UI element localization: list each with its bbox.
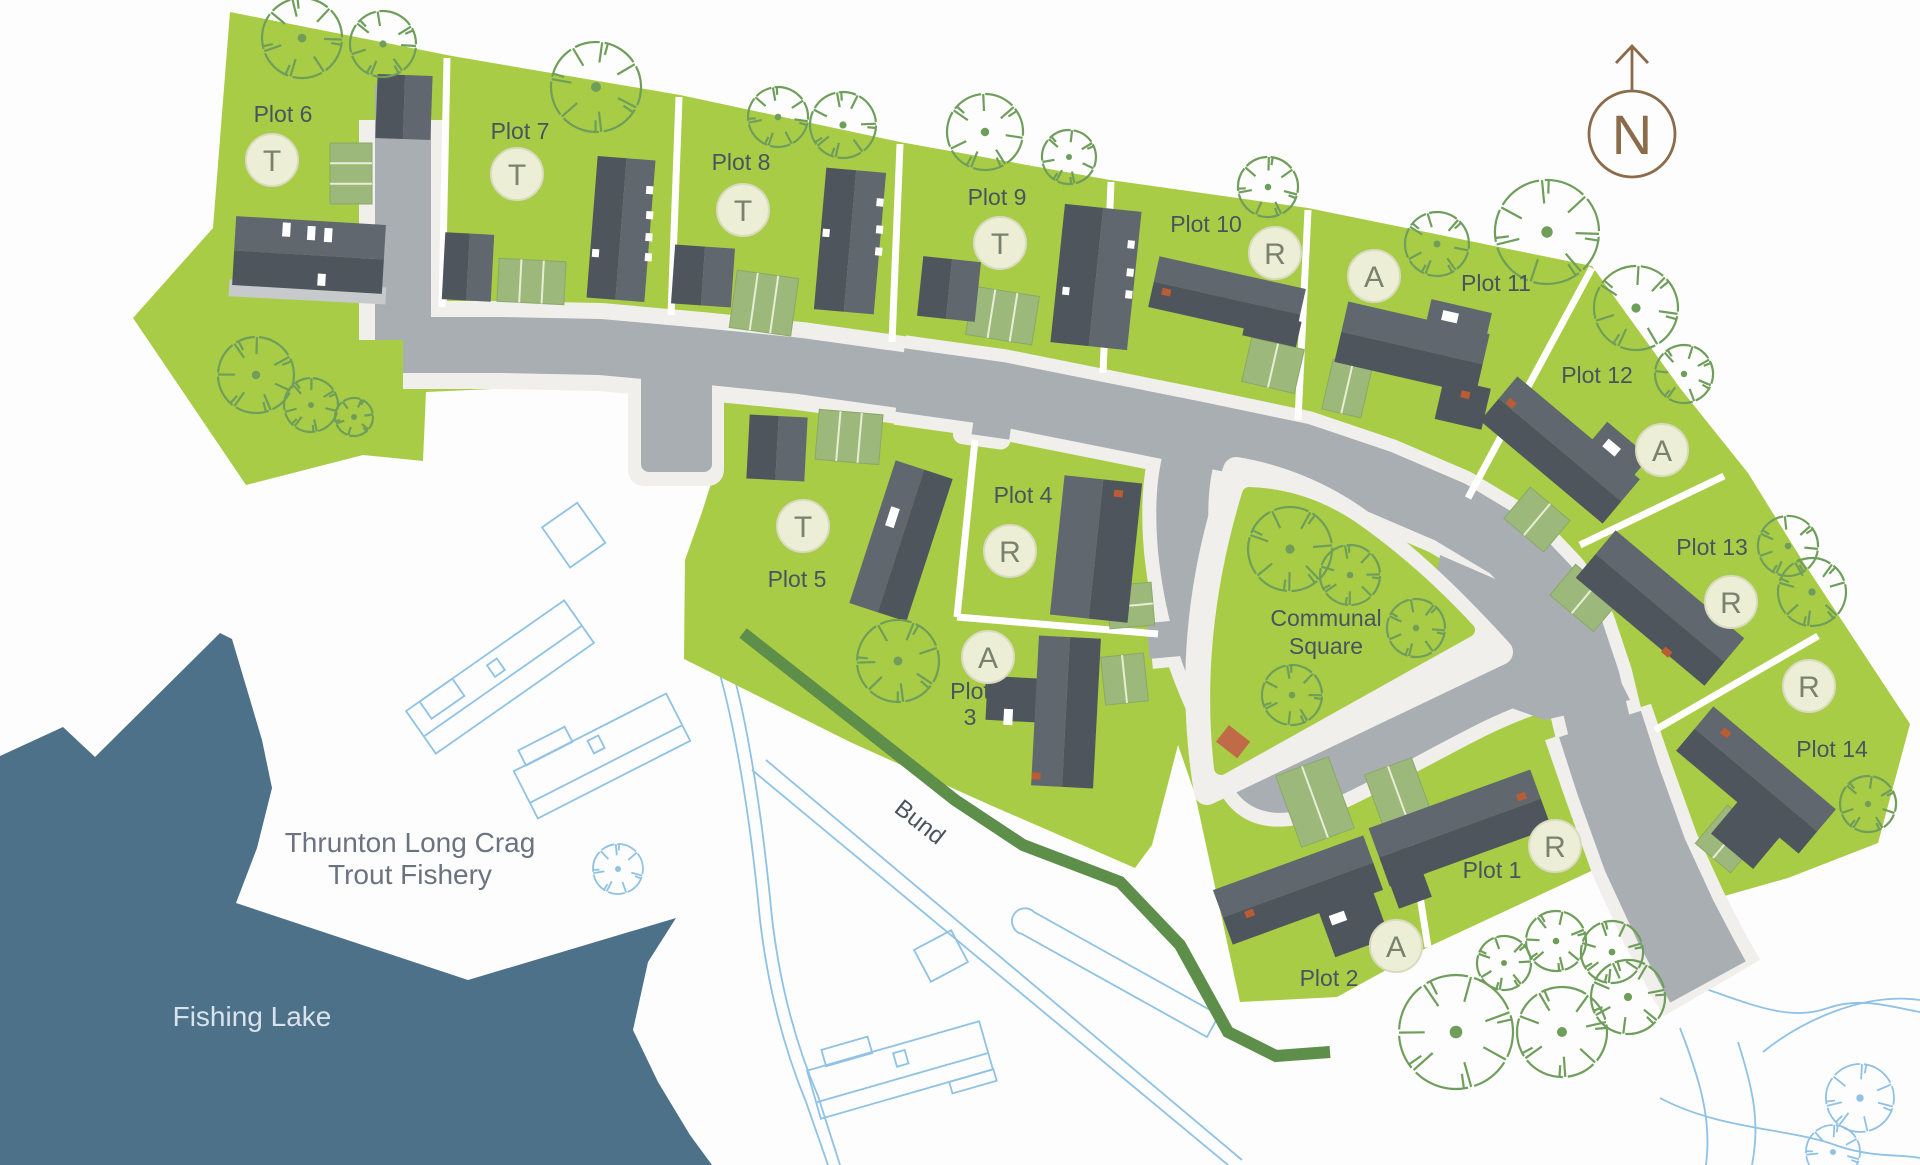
svg-text:Plot 6: Plot 6 [254, 101, 313, 127]
svg-text:R: R [1720, 587, 1742, 620]
svg-text:T: T [991, 228, 1009, 261]
svg-text:T: T [734, 195, 752, 228]
svg-text:Plot 1: Plot 1 [1463, 857, 1522, 883]
svg-text:R: R [1264, 238, 1286, 271]
svg-text:T: T [794, 511, 812, 544]
svg-text:Plot 4: Plot 4 [994, 482, 1053, 508]
svg-text:Plot 10: Plot 10 [1170, 211, 1242, 237]
svg-text:N: N [1612, 103, 1652, 166]
svg-text:Plot 11: Plot 11 [1461, 270, 1531, 296]
svg-text:Plot 14: Plot 14 [1796, 736, 1868, 762]
svg-text:Fishing Lake: Fishing Lake [173, 1001, 332, 1032]
svg-text:A: A [978, 642, 998, 675]
svg-text:Trout Fishery: Trout Fishery [328, 859, 492, 890]
svg-text:A: A [1364, 261, 1384, 294]
svg-text:R: R [1544, 831, 1566, 864]
svg-text:T: T [508, 159, 526, 192]
svg-text:Plot 5: Plot 5 [768, 566, 827, 592]
svg-text:Plot 9: Plot 9 [968, 184, 1027, 210]
svg-text:Plot 8: Plot 8 [712, 149, 771, 175]
svg-text:Plot 12: Plot 12 [1561, 362, 1633, 388]
svg-text:Communal: Communal [1270, 605, 1381, 631]
svg-text:Plot 13: Plot 13 [1676, 534, 1748, 560]
svg-text:Square: Square [1289, 633, 1363, 659]
svg-text:Plot 7: Plot 7 [491, 118, 550, 144]
svg-text:R: R [999, 536, 1021, 569]
svg-text:A: A [1386, 931, 1406, 964]
svg-text:T: T [263, 145, 281, 178]
svg-text:3: 3 [964, 704, 977, 730]
svg-text:Plot 2: Plot 2 [1300, 965, 1359, 991]
svg-text:R: R [1798, 671, 1820, 704]
svg-text:Thrunton Long Crag: Thrunton Long Crag [285, 827, 536, 858]
svg-text:A: A [1652, 435, 1672, 468]
